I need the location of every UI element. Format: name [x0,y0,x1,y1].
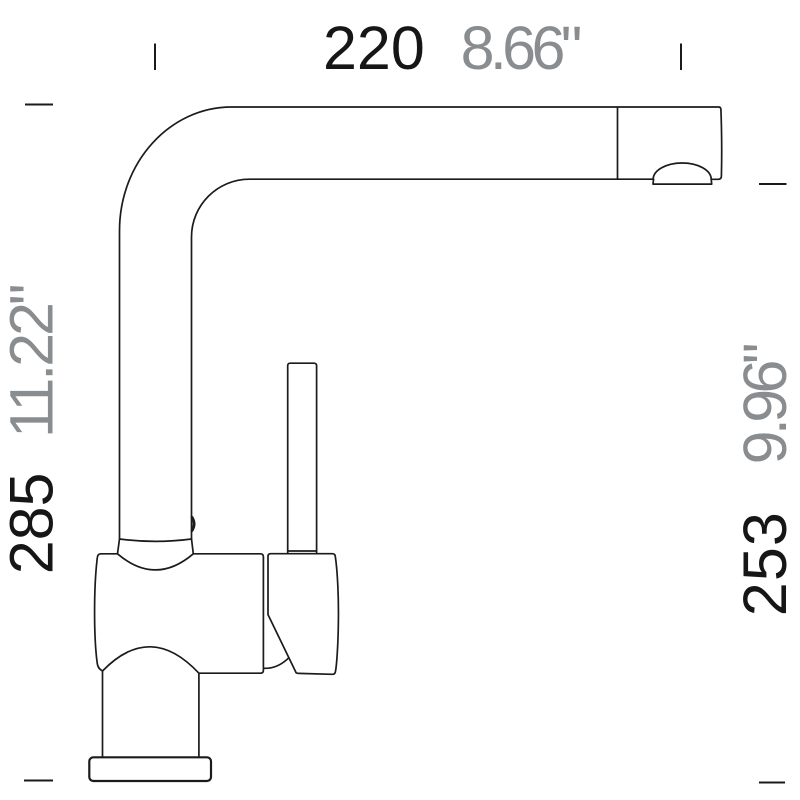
svg-text:253: 253 [731,512,799,616]
svg-text:9.96": 9.96" [731,343,799,465]
svg-text:8.66": 8.66" [461,14,583,82]
svg-text:220: 220 [323,14,425,82]
svg-text:285: 285 [0,473,66,575]
svg-text:11.22": 11.22" [0,283,66,438]
